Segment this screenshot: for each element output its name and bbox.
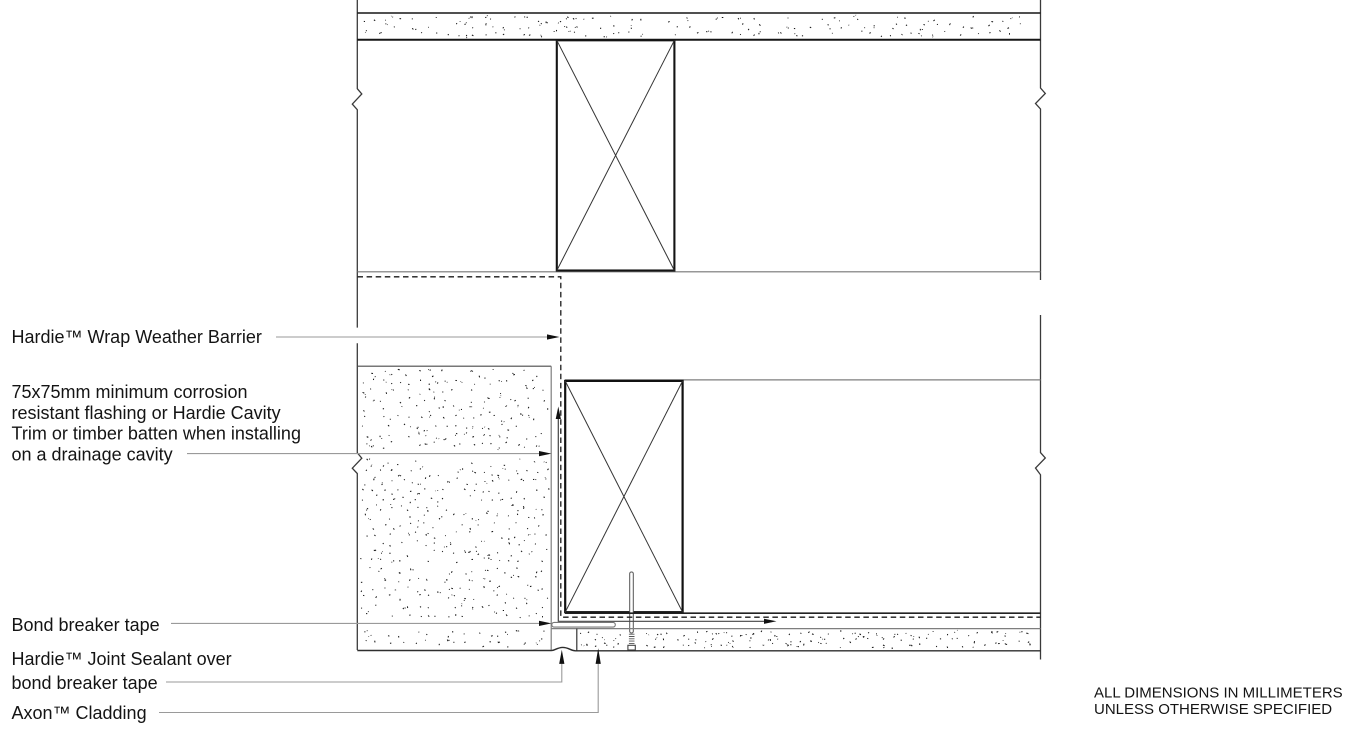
- svg-text:Axon™ Cladding: Axon™ Cladding: [12, 703, 147, 723]
- svg-text:ALL DIMENSIONS IN MILLIMETERS: ALL DIMENSIONS IN MILLIMETERS: [1094, 685, 1343, 702]
- svg-text:Hardie™ Joint Sealant over: Hardie™ Joint Sealant over: [12, 649, 232, 669]
- svg-text:bond breaker tape: bond breaker tape: [12, 673, 158, 693]
- svg-text:resistant flashing or Hardie C: resistant flashing or Hardie Cavity: [12, 403, 281, 423]
- svg-text:Hardie™ Wrap Weather Barrier: Hardie™ Wrap Weather Barrier: [12, 327, 262, 347]
- svg-text:75x75mm minimum corrosion: 75x75mm minimum corrosion: [12, 382, 248, 402]
- svg-text:on a drainage cavity: on a drainage cavity: [12, 444, 173, 464]
- svg-text:UNLESS OTHERWISE SPECIFIED: UNLESS OTHERWISE SPECIFIED: [1094, 701, 1332, 718]
- svg-text:Bond breaker tape: Bond breaker tape: [12, 615, 160, 635]
- svg-text:Trim or timber batten when ins: Trim or timber batten when installing: [12, 424, 301, 444]
